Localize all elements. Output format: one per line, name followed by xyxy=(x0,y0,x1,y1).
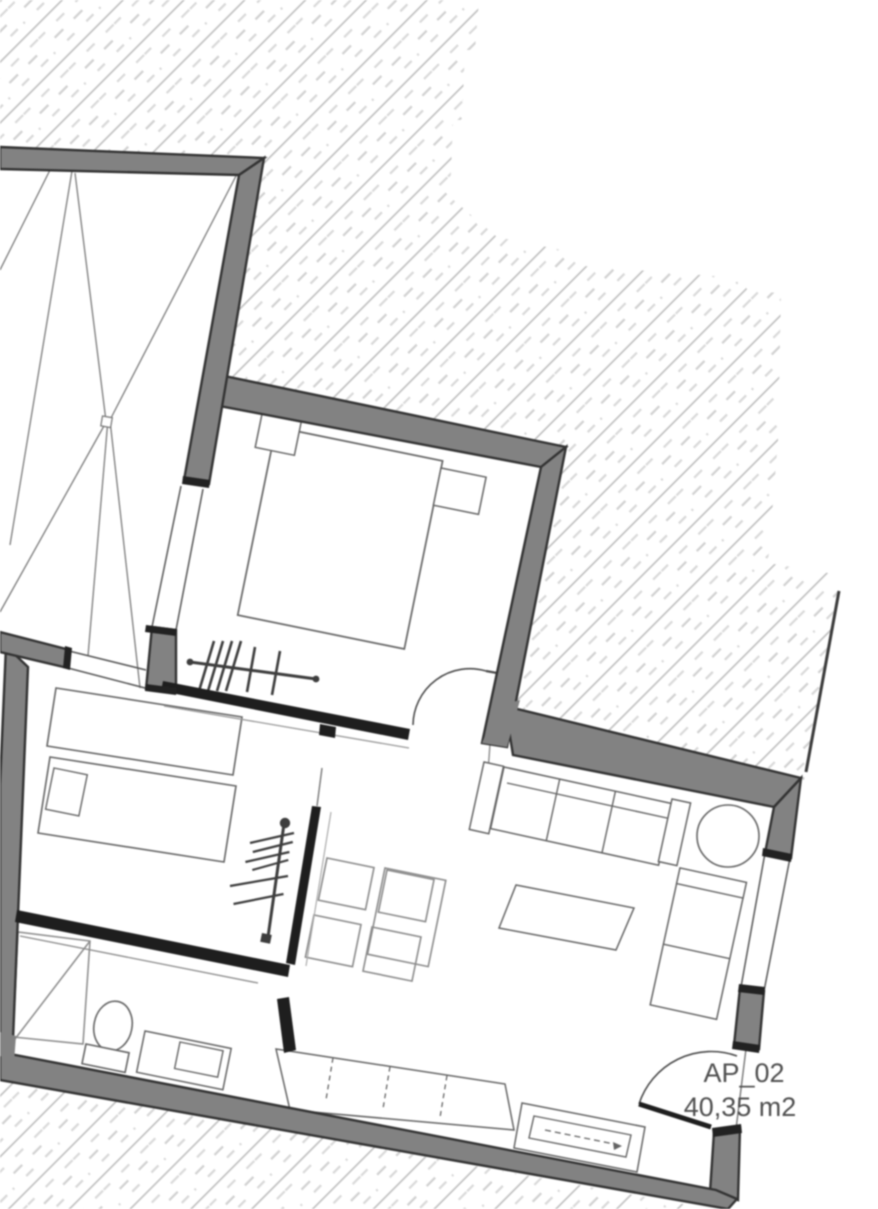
svg-text:40,35 m2: 40,35 m2 xyxy=(684,1092,797,1122)
svg-text:AP_02: AP_02 xyxy=(703,1058,784,1088)
